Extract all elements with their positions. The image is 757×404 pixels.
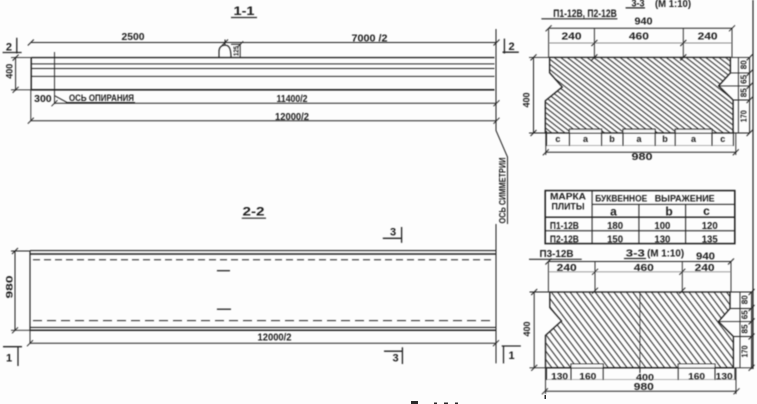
- svg-text:3-3: 3-3: [626, 249, 646, 260]
- svg-text:П1-12В: П1-12В: [550, 221, 579, 232]
- svg-text:940: 940: [696, 252, 715, 263]
- svg-text:240: 240: [557, 263, 578, 274]
- svg-text:65: 65: [739, 74, 748, 84]
- svg-text:240: 240: [698, 32, 719, 43]
- svg-text:980: 980: [634, 382, 655, 393]
- svg-text:240: 240: [695, 263, 716, 274]
- svg-text:980: 980: [5, 276, 16, 299]
- svg-text:b: b: [662, 134, 668, 144]
- svg-text:2: 2: [508, 41, 514, 53]
- svg-text:b: b: [665, 205, 672, 219]
- svg-text:3-3: 3-3: [632, 0, 645, 9]
- svg-text:85: 85: [739, 88, 748, 98]
- svg-text:170: 170: [739, 110, 748, 122]
- svg-text:170: 170: [741, 345, 750, 357]
- svg-text:160: 160: [579, 371, 596, 381]
- svg-text:180: 180: [607, 221, 623, 232]
- svg-text:80: 80: [739, 60, 748, 70]
- svg-text:1-1: 1-1: [234, 4, 255, 18]
- svg-text:ОСЬ СИММЕТРИИ: ОСЬ СИММЕТРИИ: [498, 158, 508, 224]
- svg-text:П2-12В: П2-12В: [550, 234, 579, 245]
- svg-text:120: 120: [702, 221, 718, 232]
- svg-text:460: 460: [629, 32, 650, 43]
- svg-text:940: 940: [635, 16, 653, 27]
- svg-text:11400/2: 11400/2: [277, 94, 308, 105]
- svg-text:400: 400: [522, 322, 532, 337]
- svg-text:80: 80: [741, 295, 750, 305]
- svg-text:130: 130: [716, 371, 733, 381]
- svg-text:100: 100: [654, 221, 670, 232]
- svg-text:7000 /2: 7000 /2: [352, 34, 388, 45]
- svg-text:(М 1:10): (М 1:10): [655, 0, 691, 10]
- svg-text:135: 135: [702, 234, 718, 245]
- svg-text:1: 1: [508, 350, 514, 362]
- svg-text:ОСЬ ОПИРАНИЯ: ОСЬ ОПИРАНИЯ: [69, 92, 134, 103]
- svg-text:П1-12В, П2-12В: П1-12В, П2-12В: [553, 8, 617, 20]
- svg-text:3: 3: [392, 353, 398, 365]
- svg-text:130: 130: [551, 371, 568, 381]
- svg-text:с: с: [720, 134, 725, 144]
- svg-text:460: 460: [634, 263, 655, 274]
- svg-text:с: с: [555, 134, 560, 144]
- svg-text:400: 400: [4, 64, 14, 79]
- svg-text:400: 400: [521, 93, 531, 108]
- svg-text:400: 400: [636, 372, 654, 382]
- svg-text:150: 150: [607, 234, 623, 245]
- svg-text:с: с: [703, 204, 710, 218]
- svg-text:1: 1: [6, 353, 12, 365]
- svg-text:а: а: [610, 205, 617, 219]
- svg-text:12000/2: 12000/2: [275, 112, 309, 123]
- svg-text:980: 980: [632, 152, 654, 163]
- svg-text:65: 65: [741, 310, 750, 320]
- svg-text:(М 1:10): (М 1:10): [647, 249, 684, 260]
- svg-text:БУКВЕННОЕ: БУКВЕННОЕ: [595, 194, 647, 205]
- svg-text:125: 125: [232, 46, 241, 56]
- svg-text:2500: 2500: [122, 32, 145, 43]
- svg-text:300: 300: [34, 94, 52, 105]
- svg-text:160: 160: [688, 371, 705, 381]
- svg-text:ПЛИТЫ: ПЛИТЫ: [552, 201, 585, 212]
- svg-text:3: 3: [390, 227, 396, 239]
- svg-text:b: b: [609, 134, 615, 144]
- svg-text:240: 240: [562, 32, 583, 43]
- svg-text:П3-12В: П3-12В: [540, 249, 574, 260]
- svg-text:130: 130: [654, 234, 670, 245]
- svg-text:2: 2: [6, 42, 12, 54]
- svg-text:12000/2: 12000/2: [258, 333, 292, 344]
- svg-text:ВЫРАЖЕНИЕ: ВЫРАЖЕНИЕ: [655, 194, 715, 205]
- svg-text:85: 85: [741, 324, 750, 334]
- svg-text:2-2: 2-2: [243, 205, 265, 219]
